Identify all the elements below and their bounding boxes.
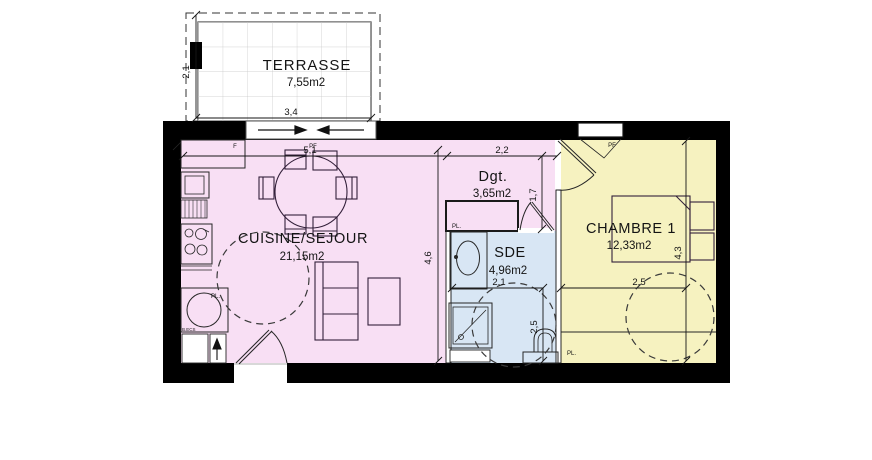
terrace-area-label: 7,55m2 (287, 77, 325, 89)
svg-text:5,1: 5,1 (303, 145, 316, 156)
chambre-label: CHAMBRE 1 (586, 221, 676, 237)
chambre-window-label: PF (608, 143, 616, 149)
chambre-area: 12,33m2 (607, 240, 652, 252)
cuisine-sejour-area: 21,15m2 (280, 251, 325, 263)
sde-area: 4,96m2 (489, 265, 527, 277)
water-heater-closet-label: PL. (211, 294, 220, 300)
window-f-label: F (233, 144, 237, 150)
svg-text:2,2: 2,2 (495, 145, 508, 156)
sde-label: SDE (494, 245, 526, 261)
degagement-area: 3,65m2 (473, 188, 511, 200)
sde-door-threshold (518, 228, 554, 233)
terrace: TERRASSE 7,55m2 (186, 13, 380, 121)
floor-plan-page: TERRASSE 7,55m2 PF F PF PL. (0, 0, 872, 460)
partition-sejour-chambre (556, 190, 561, 363)
chambre-window-frame (578, 123, 623, 137)
svg-text:4,6: 4,6 (423, 251, 434, 264)
closet-chambre-label: PL. (567, 351, 576, 357)
svg-text:3,4: 3,4 (284, 107, 297, 118)
closet-degagement-label: PL. (452, 224, 461, 230)
entrance-opening (234, 363, 287, 383)
svg-text:2,5: 2,5 (632, 277, 645, 288)
cuisine-sejour-label: CUISINE/SEJOUR (238, 231, 368, 247)
entry-cabinet (182, 334, 208, 363)
svg-text:2,5: 2,5 (529, 320, 540, 333)
water-heater-note: B.ECS (182, 327, 196, 332)
wall-right (716, 121, 730, 383)
svg-text:1,7: 1,7 (528, 188, 539, 201)
degagement-label: Dgt. (479, 169, 508, 185)
svg-text:2,1: 2,1 (181, 65, 192, 78)
faucet-icon (454, 255, 458, 259)
sde-cabinet (450, 350, 490, 362)
wall-left (163, 121, 181, 383)
floor-plan-drawing: TERRASSE 7,55m2 PF F PF PL. (0, 0, 872, 460)
terrace-label: TERRASSE (263, 57, 352, 74)
svg-text:4,3: 4,3 (673, 246, 684, 259)
chambre-door-threshold (555, 140, 561, 190)
svg-text:2,1: 2,1 (492, 277, 505, 288)
